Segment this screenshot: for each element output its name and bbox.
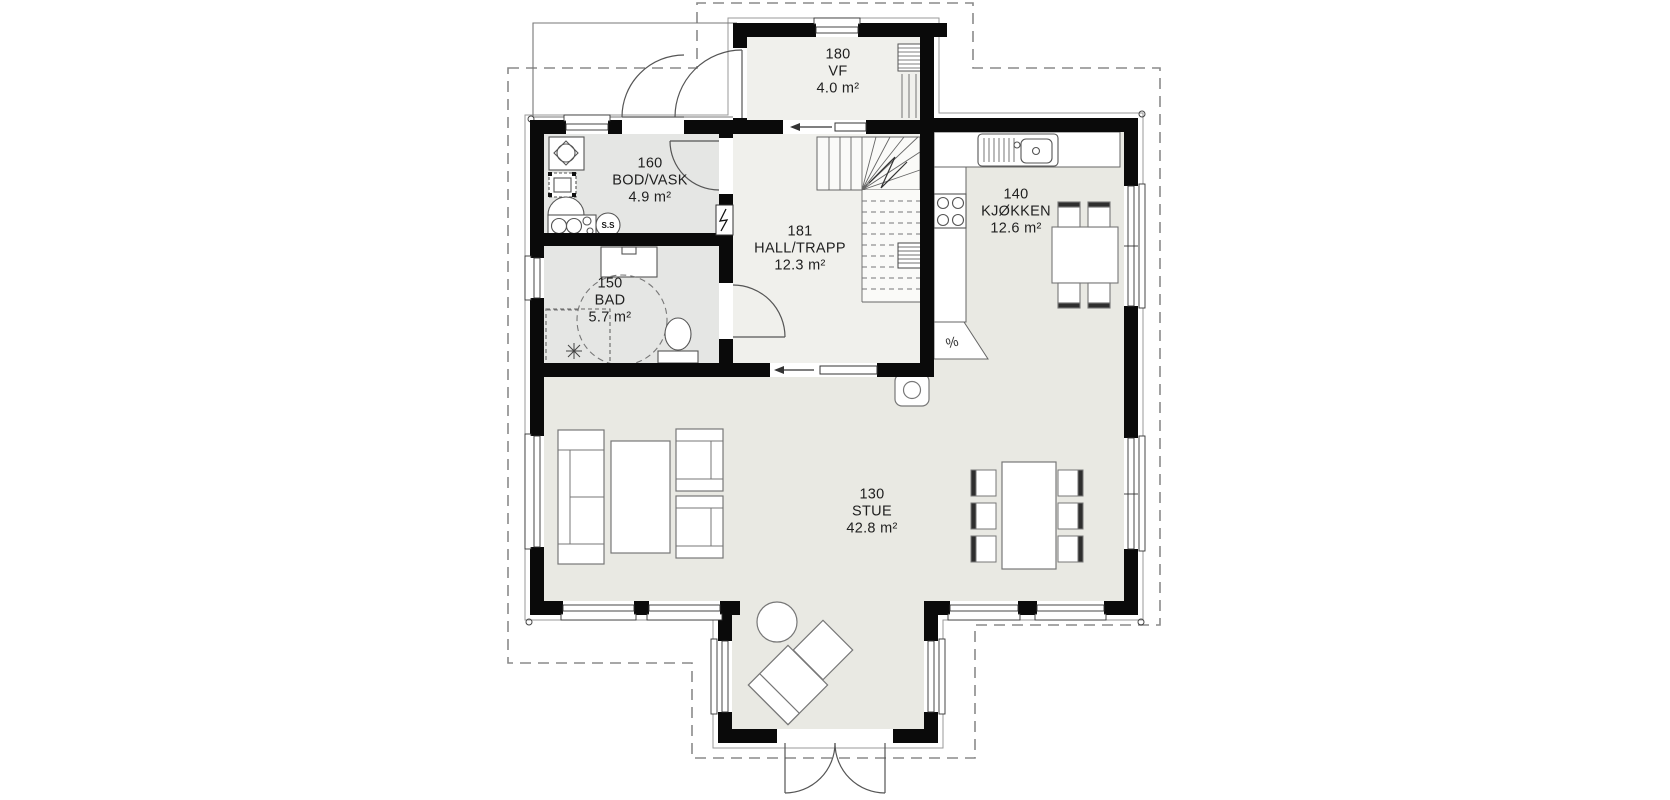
window-bay-left [711, 639, 732, 714]
sliding-door-hall-stue [774, 366, 877, 374]
exterior-door-bod [622, 55, 684, 134]
armchair-2 [676, 496, 723, 558]
room-label-stue: 130 STUE 42.8 m² [846, 487, 897, 538]
window-bod-top [564, 115, 610, 134]
room-label-hall-trapp: 181 HALL/TRAPP 12.3 m² [754, 224, 846, 275]
room-number: 160 [612, 156, 687, 173]
vanity-sink [601, 247, 657, 277]
washing-machine [549, 137, 584, 170]
armchair-1 [676, 429, 723, 491]
room-name: STUE [846, 504, 897, 521]
room-name: HALL/TRAPP [754, 241, 846, 258]
window-vf-top [814, 18, 860, 37]
room-number: 180 [817, 47, 860, 64]
kitchen-sink [978, 134, 1058, 166]
window-stue-right [1124, 436, 1145, 551]
window-stue-bottom-3 [948, 601, 1020, 620]
coffee-table [611, 441, 670, 553]
room-label-bod-vask: 160 BOD/VASK 4.9 m² [612, 156, 687, 207]
round-side-table [757, 602, 797, 642]
room-area: 4.9 m² [612, 190, 687, 207]
room-name: BAD [589, 293, 632, 310]
window-stue-bottom-2 [647, 601, 722, 620]
utility-cabinet [548, 172, 576, 197]
entry-door-vf [675, 48, 747, 118]
window-stue-left [525, 434, 544, 549]
window-bay-right [924, 639, 945, 714]
bay-double-doors [777, 729, 893, 793]
room-name: BOD/VASK [612, 173, 687, 190]
sliding-door-vf-hall [790, 123, 866, 131]
room-name: KJØKKEN [981, 204, 1051, 221]
room-number: 150 [589, 276, 632, 293]
room-area: 4.0 m² [817, 81, 860, 98]
room-number: 181 [754, 224, 846, 241]
kitchen-table [1052, 227, 1118, 283]
entry-porch [533, 23, 737, 117]
dining-table [1002, 462, 1056, 569]
electrical-panel [716, 205, 733, 235]
window-stue-bottom-1 [561, 601, 636, 620]
window-kitchen-right [1124, 184, 1145, 308]
kitchen-stove [934, 194, 966, 228]
room-number: 140 [981, 187, 1051, 204]
stair-shaft-hatch [898, 243, 922, 268]
window-bad-left [525, 256, 544, 300]
room-area: 5.7 m² [589, 310, 632, 327]
room-area: 12.6 m² [981, 221, 1051, 238]
kitchen-counter-left [934, 167, 966, 322]
room-area: 12.3 m² [754, 258, 846, 275]
room-label-kjokken: 140 KJØKKEN 12.6 m² [981, 187, 1051, 238]
room-label-vf: 180 VF 4.0 m² [817, 47, 860, 98]
room-name: VF [817, 64, 860, 81]
window-stue-bottom-4 [1035, 601, 1106, 620]
room-area: 42.8 m² [846, 521, 897, 538]
floor-plan-drawing: % [0, 0, 1670, 800]
floor-drain-label: S.S [602, 221, 616, 230]
floor-plan-canvas: % [0, 0, 1670, 800]
sofa [558, 430, 604, 564]
room-number: 130 [846, 487, 897, 504]
room-label-bad: 150 BAD 5.7 m² [589, 276, 632, 327]
